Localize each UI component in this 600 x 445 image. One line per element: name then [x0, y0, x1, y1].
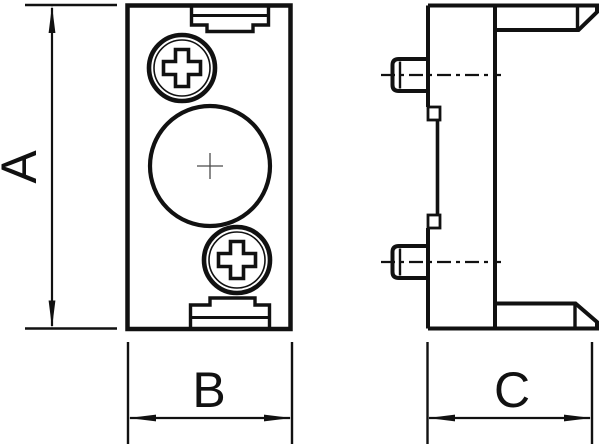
dimension-label-c: C — [494, 362, 530, 418]
technical-drawing-canvas: A B C — [0, 0, 600, 445]
dimension-label-b: B — [192, 362, 225, 418]
drawing-svg: A B C — [0, 0, 600, 445]
dimension-label-a: A — [0, 150, 47, 184]
